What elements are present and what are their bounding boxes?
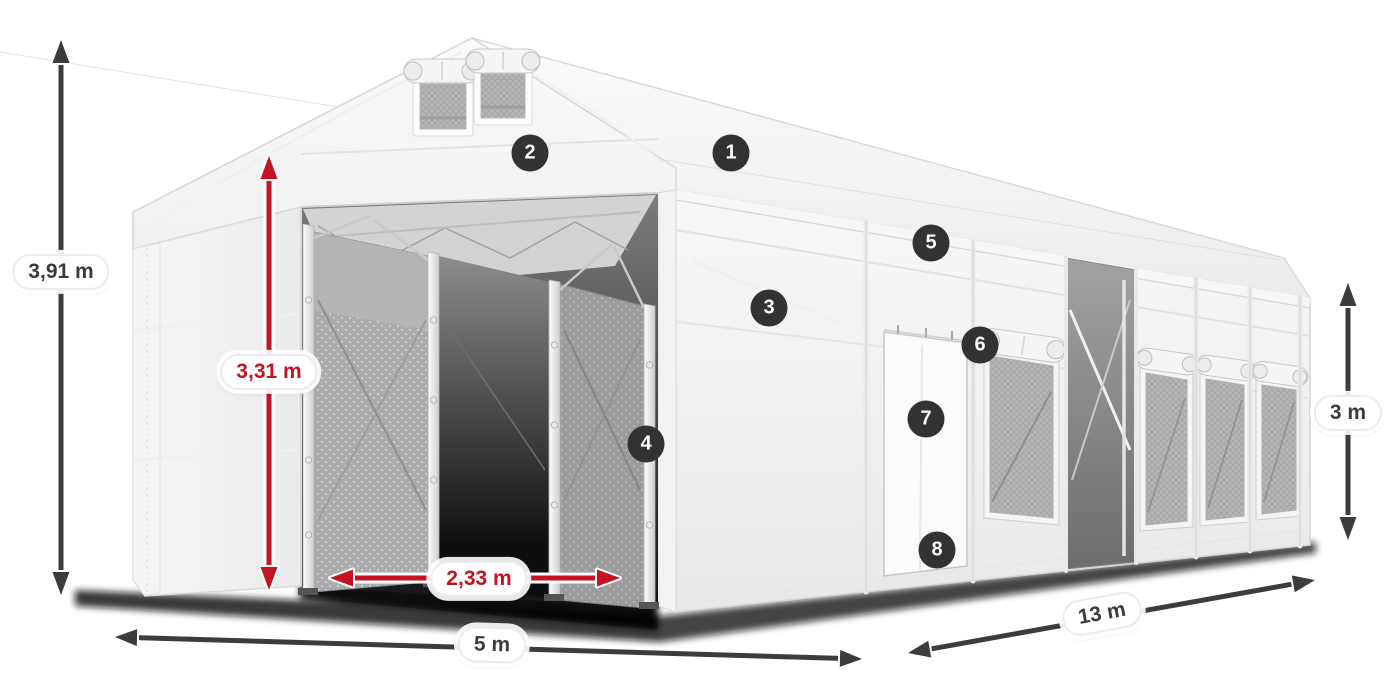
side-window-2 xyxy=(1135,347,1199,531)
callout-badge-5: 5 xyxy=(913,225,950,262)
callout-badge-2: 2 xyxy=(512,135,549,172)
front-width-label: 5 m xyxy=(457,626,526,664)
inner-height-label: 3,31 m xyxy=(220,354,317,390)
interior-mesh-panel-left xyxy=(314,232,428,592)
total-height-arrow xyxy=(53,40,70,595)
entrance-width-label: 2,33 m xyxy=(430,561,527,597)
total-height-label: 3,91 m xyxy=(12,254,109,290)
callout-badge-6: 6 xyxy=(962,327,999,364)
callout-badge-4: 4 xyxy=(628,426,665,463)
gable-vent-2 xyxy=(466,49,540,125)
side-height-label: 3 m xyxy=(1314,395,1382,431)
gable-vent-1 xyxy=(404,59,480,136)
tent-illustration xyxy=(0,0,1400,700)
product-dimension-diagram: 3,91 m 3,31 m 2,33 m 5 m 13 m 3 m 1 2 3 … xyxy=(0,0,1400,700)
callout-badge-3: 3 xyxy=(751,290,788,327)
callout-badge-1: 1 xyxy=(713,135,750,172)
callout-badge-8: 8 xyxy=(919,532,956,569)
entrance-opening xyxy=(298,193,659,609)
side-open-bay xyxy=(1066,258,1136,569)
tent-left-wall xyxy=(133,207,301,596)
callout-badge-7: 7 xyxy=(908,401,945,438)
